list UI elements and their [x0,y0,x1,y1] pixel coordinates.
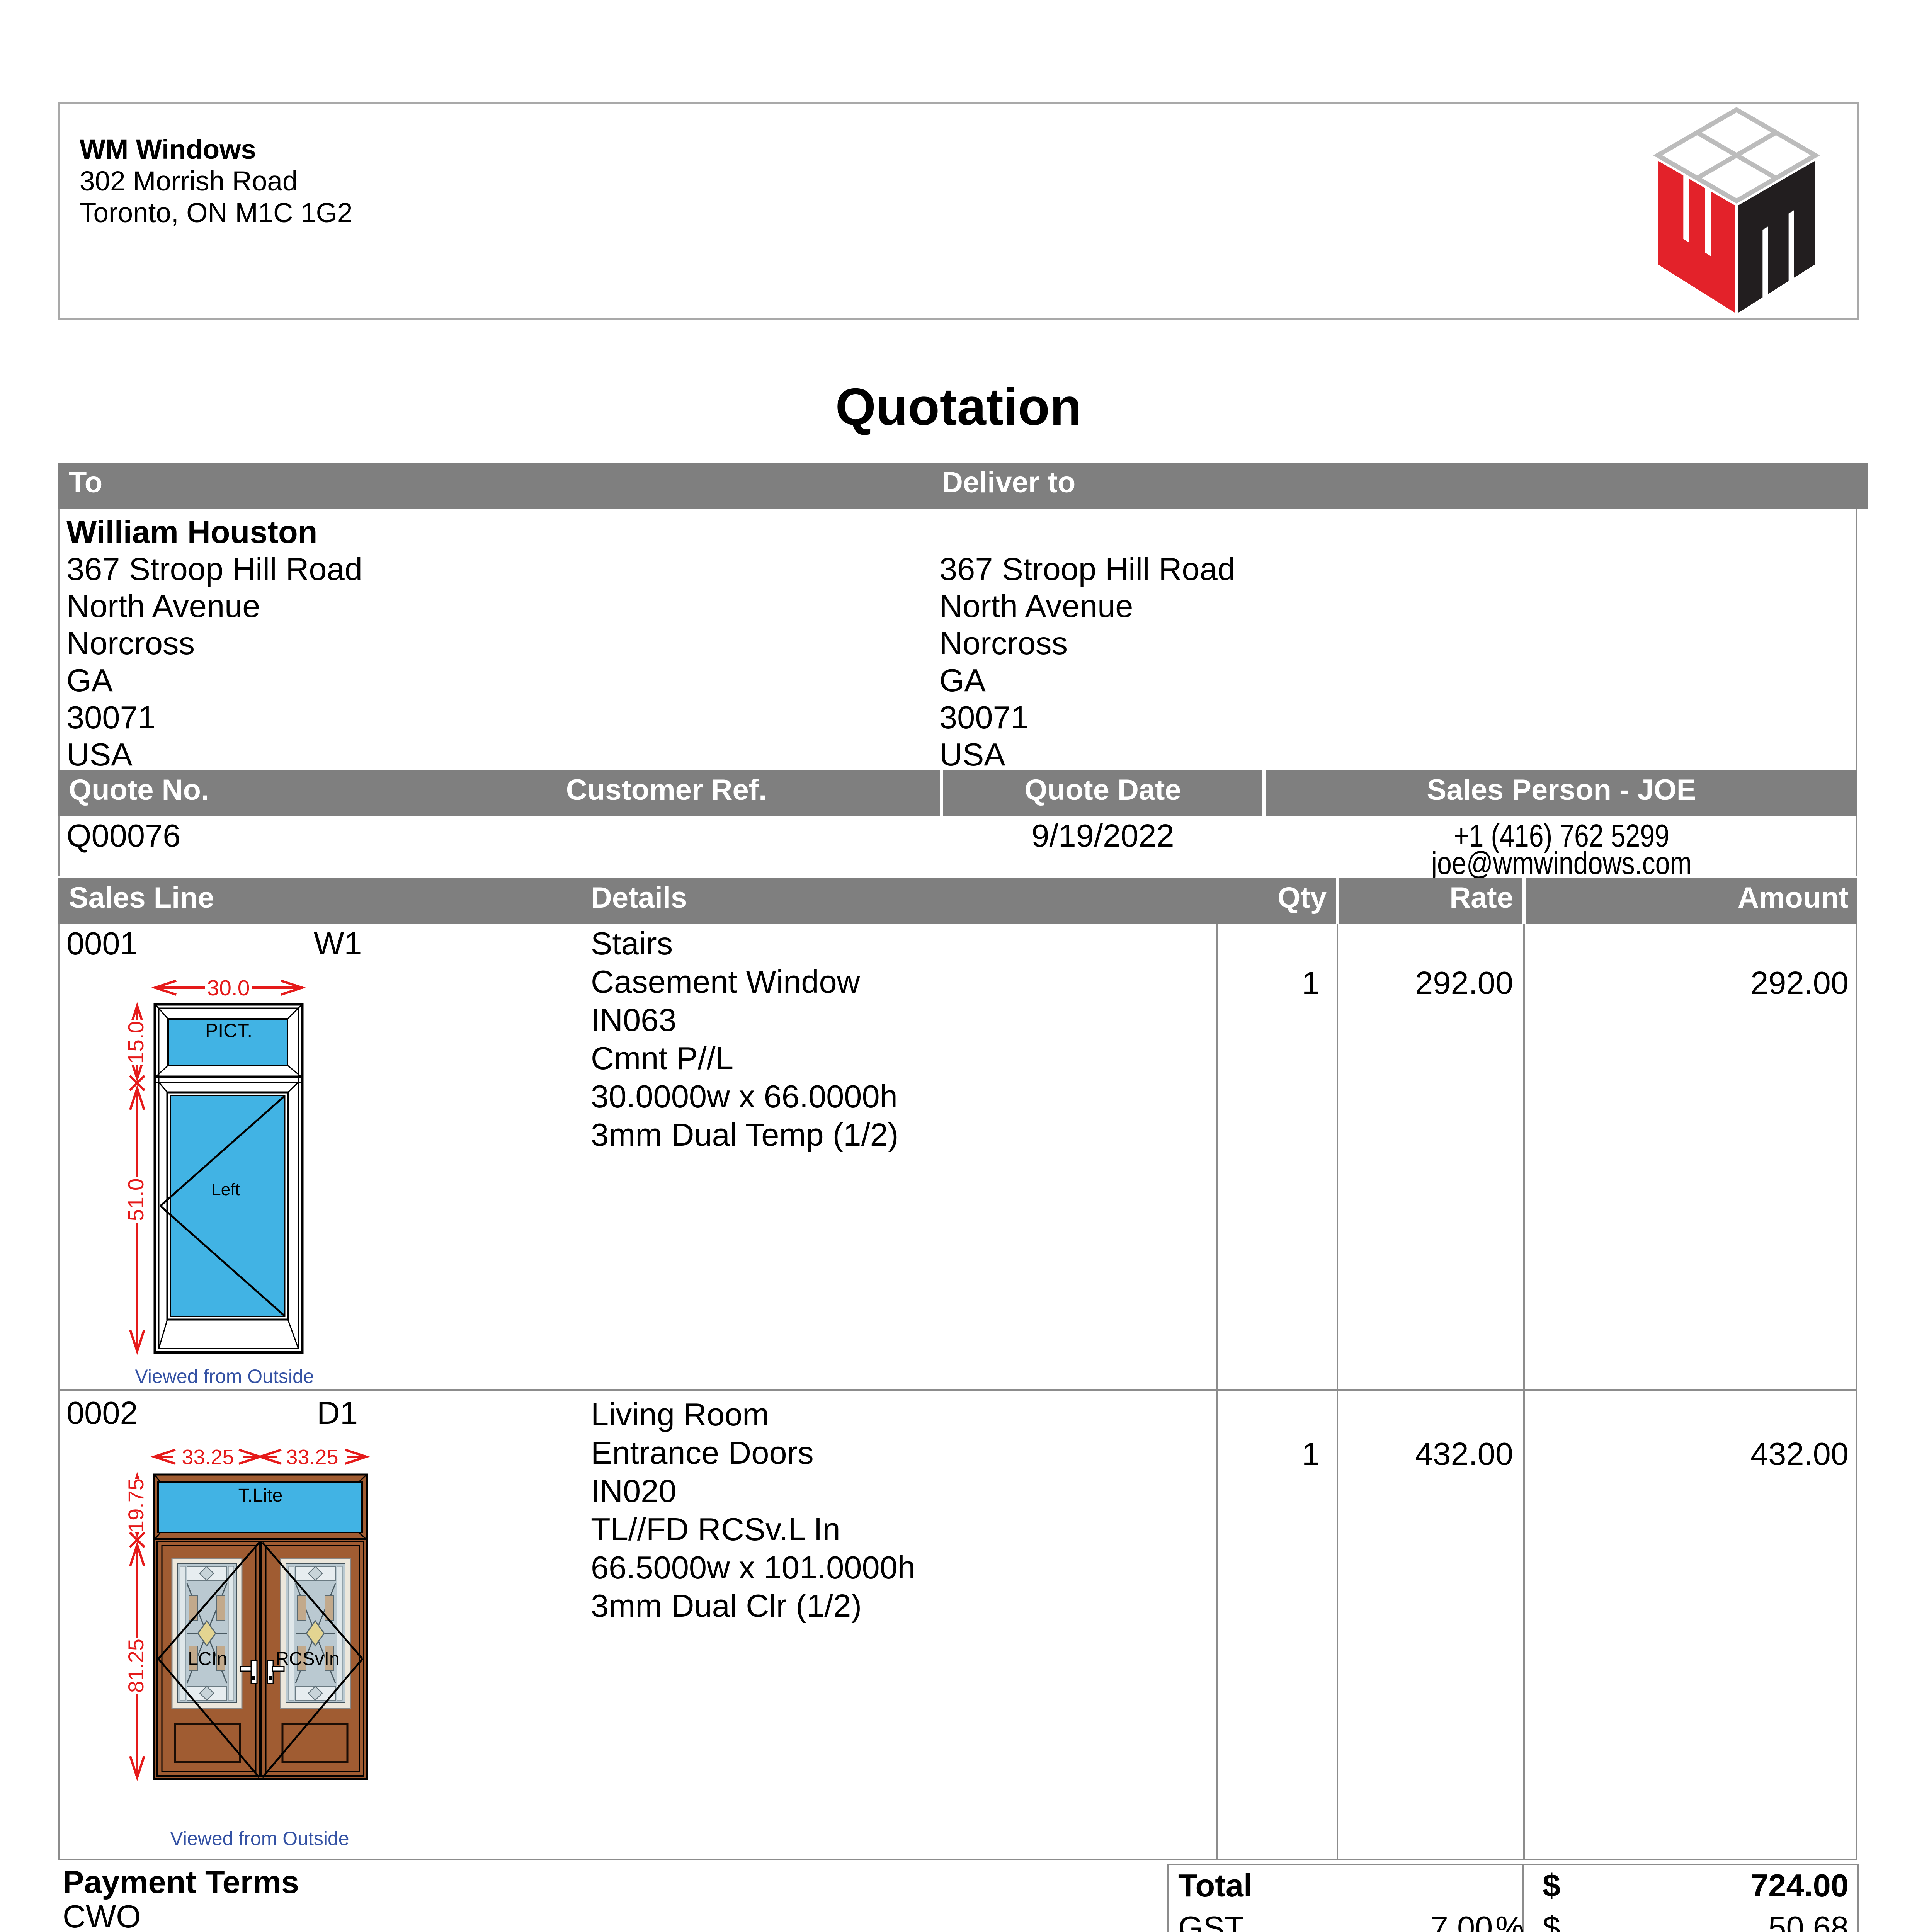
svg-text:Viewed from Outside: Viewed from Outside [135,1366,314,1387]
svg-text:RCSvIn: RCSvIn [276,1649,339,1669]
svg-text:LCIn: LCIn [188,1649,227,1669]
svg-text:81.25: 81.25 [124,1639,148,1693]
svg-text:T.Lite: T.Lite [238,1485,283,1506]
svg-text:15.0: 15.0 [124,1021,148,1064]
svg-text:51.0: 51.0 [124,1179,148,1221]
svg-text:30.0: 30.0 [207,976,250,1000]
svg-text:33.25: 33.25 [182,1446,234,1469]
svg-text:PICT.: PICT. [205,1020,252,1041]
svg-text:19.75: 19.75 [124,1478,148,1532]
svg-text:33.25: 33.25 [286,1446,338,1469]
svg-text:Left: Left [211,1180,240,1199]
svg-text:Viewed from Outside: Viewed from Outside [170,1828,349,1849]
